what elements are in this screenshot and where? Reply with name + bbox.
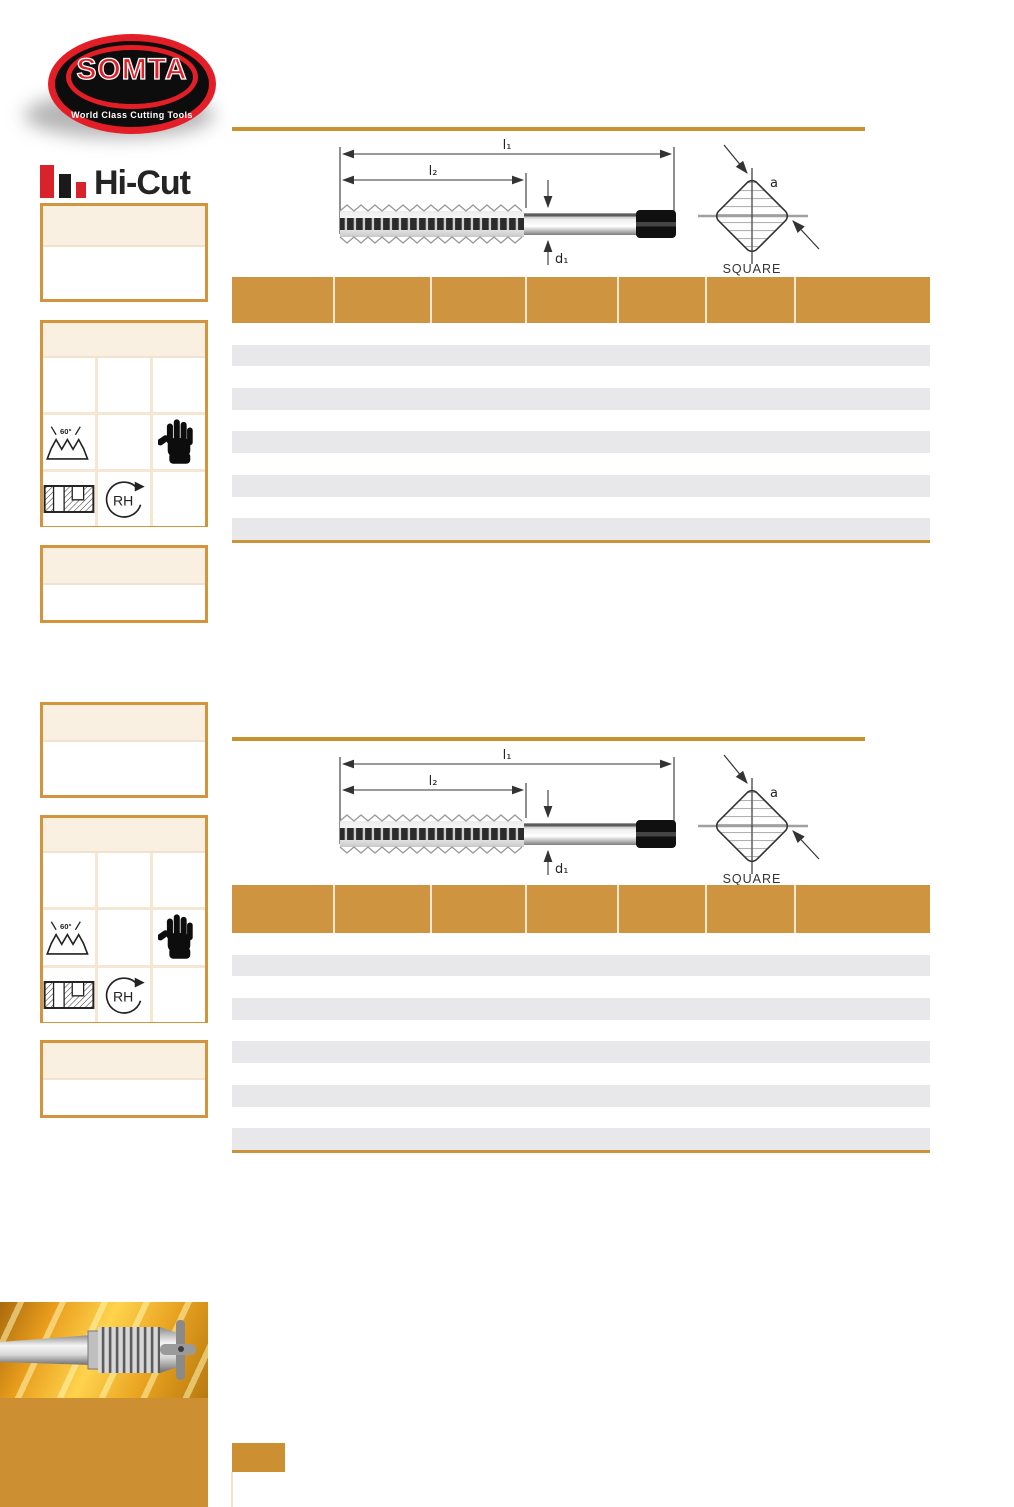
symbol-cell-empty xyxy=(98,853,150,907)
table-row xyxy=(232,1085,930,1107)
right-hand-rotation-icon: RH xyxy=(98,968,150,1022)
table-row xyxy=(232,475,930,497)
table-row xyxy=(232,345,930,367)
catalog-page: SOMTA World Class Cutting Tools Hi-Cut xyxy=(0,0,1014,1507)
tap-photo-illustration xyxy=(0,1302,208,1398)
spec-table xyxy=(232,277,930,543)
symbol-box-header xyxy=(43,818,205,853)
table-row xyxy=(232,955,930,977)
table-header-cell xyxy=(527,885,619,933)
note-box-header xyxy=(43,548,205,585)
svg-text:RH: RH xyxy=(113,493,133,509)
right-hand-rotation-icon: RH xyxy=(98,472,150,526)
symbol-cell-empty xyxy=(98,910,150,964)
svg-text:d₁: d₁ xyxy=(555,862,568,877)
table-header-cell xyxy=(232,277,335,323)
hicut-bar-red-icon xyxy=(40,165,54,198)
note-box-header xyxy=(43,1043,205,1080)
hicut-logo: Hi-Cut xyxy=(40,162,190,198)
svg-text:SQUARE: SQUARE xyxy=(723,872,782,886)
footer-divider-line xyxy=(231,1472,233,1507)
hicut-bar-black-icon xyxy=(59,174,71,198)
symbol-cell-empty xyxy=(43,358,95,412)
somta-logo-tagline: World Class Cutting Tools xyxy=(55,110,209,120)
table-row xyxy=(232,1128,930,1150)
table-header-cell xyxy=(619,277,708,323)
thread-profile-60-icon: 60° xyxy=(43,415,95,469)
table-row xyxy=(232,1020,930,1042)
svg-text:60°: 60° xyxy=(60,922,72,931)
tap-dimension-diagram: l₁ l₂ d₁ xyxy=(330,134,686,268)
info-box-header xyxy=(43,705,205,742)
cross-section-icon xyxy=(43,968,95,1022)
symbol-cell-empty xyxy=(153,358,205,412)
table-header-cell xyxy=(707,277,796,323)
svg-text:d₁: d₁ xyxy=(555,252,568,267)
symbol-box-header xyxy=(43,323,205,358)
spec-table xyxy=(232,885,930,1153)
gold-footer-block xyxy=(0,1398,208,1507)
table-row xyxy=(232,518,930,540)
symbol-cell-empty xyxy=(153,472,205,526)
sidebar-note-box xyxy=(40,545,208,623)
symbol-grid: 60° xyxy=(43,358,205,526)
table-row xyxy=(232,933,930,955)
sidebar-symbol-box: 60° xyxy=(40,815,208,1023)
symbol-cell-empty xyxy=(153,968,205,1022)
svg-text:a: a xyxy=(770,176,778,191)
svg-text:60°: 60° xyxy=(60,427,72,436)
table-header-row xyxy=(232,277,930,323)
thread-profile-60-icon: 60° xyxy=(43,910,95,964)
symbol-cell-empty xyxy=(98,358,150,412)
table-header-cell xyxy=(707,885,796,933)
page-number-block xyxy=(232,1443,285,1472)
somta-logo: SOMTA World Class Cutting Tools xyxy=(48,34,216,134)
sidebar-note-box xyxy=(40,1040,208,1118)
table-row xyxy=(232,410,930,432)
section-rule xyxy=(232,737,865,741)
symbol-grid: 60° xyxy=(43,853,205,1022)
glove-hand-icon xyxy=(153,415,205,469)
table-header-cell xyxy=(232,885,335,933)
table-row xyxy=(232,998,930,1020)
svg-text:RH: RH xyxy=(113,988,133,1004)
table-header-row xyxy=(232,885,930,933)
table-row xyxy=(232,431,930,453)
svg-text:SQUARE: SQUARE xyxy=(723,262,782,276)
table-header-cell xyxy=(335,885,432,933)
table-header-cell xyxy=(796,277,930,323)
table-header-cell xyxy=(432,277,526,323)
svg-text:l₁: l₁ xyxy=(503,138,512,153)
table-row xyxy=(232,366,930,388)
hicut-logo-text: Hi-Cut xyxy=(94,170,190,198)
sidebar-symbol-box: 60° xyxy=(40,320,208,527)
cross-section-icon xyxy=(43,472,95,526)
svg-text:a: a xyxy=(770,786,778,801)
info-box-header xyxy=(43,206,205,247)
symbol-cell-empty xyxy=(153,853,205,907)
symbol-cell-empty xyxy=(43,853,95,907)
section-rule xyxy=(232,127,865,131)
table-row xyxy=(232,976,930,998)
square-shank-diagram: a SQUARE xyxy=(690,750,830,888)
svg-text:l₁: l₁ xyxy=(503,748,512,763)
hicut-bar-red-small-icon xyxy=(76,182,86,198)
sidebar-info-box xyxy=(40,702,208,798)
table-header-cell xyxy=(335,277,432,323)
table-row xyxy=(232,1063,930,1085)
table-row xyxy=(232,1107,930,1129)
sidebar-info-box xyxy=(40,203,208,302)
table-header-cell xyxy=(527,277,619,323)
somta-logo-title: SOMTA xyxy=(55,53,209,87)
tap-product-photo xyxy=(0,1302,208,1398)
svg-text:l₂: l₂ xyxy=(429,164,438,179)
table-row xyxy=(232,453,930,475)
table-row xyxy=(232,323,930,345)
table-row xyxy=(232,388,930,410)
glove-hand-icon xyxy=(153,910,205,964)
tap-dimension-diagram: l₁ l₂ d₁ xyxy=(330,744,686,878)
square-shank-diagram: a SQUARE xyxy=(690,140,830,278)
table-body xyxy=(232,933,930,1150)
table-header-cell xyxy=(619,885,708,933)
table-header-cell xyxy=(432,885,526,933)
symbol-cell-empty xyxy=(98,415,150,469)
table-body xyxy=(232,323,930,540)
svg-text:l₂: l₂ xyxy=(429,774,438,789)
table-header-cell xyxy=(796,885,930,933)
table-row xyxy=(232,1041,930,1063)
table-row xyxy=(232,497,930,519)
